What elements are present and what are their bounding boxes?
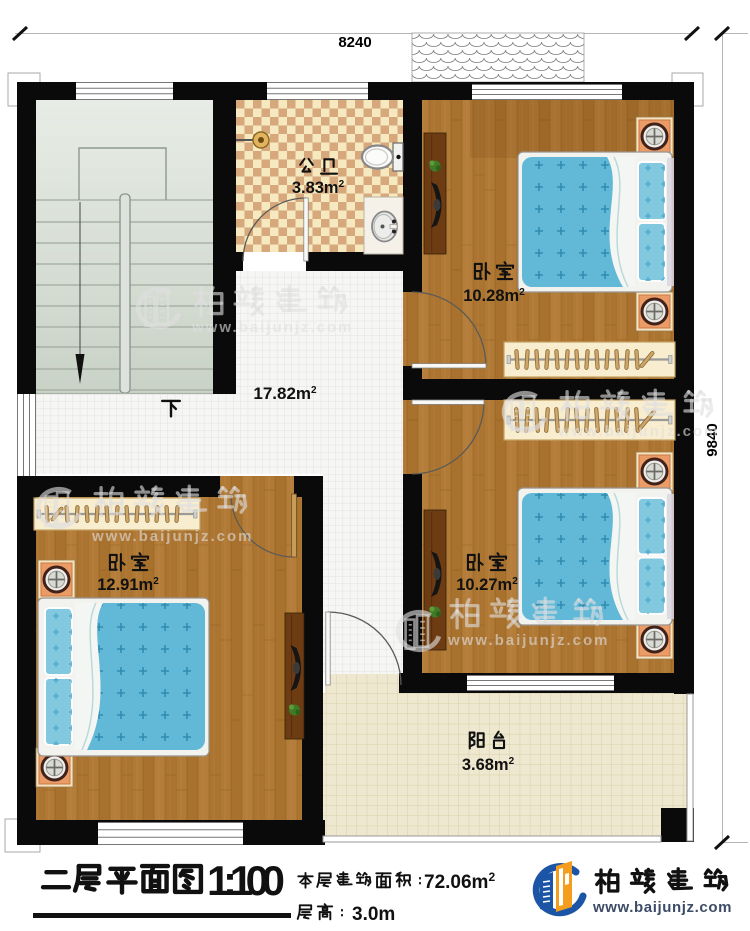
svg-text:3.68m2: 3.68m2 <box>462 756 515 774</box>
svg-text:www.baijunjz.com: www.baijunjz.com <box>557 423 719 440</box>
svg-text:10.28m2: 10.28m2 <box>463 287 525 305</box>
svg-text:www.baijunjz.com: www.baijunjz.com <box>592 899 732 916</box>
svg-text:www.baijunjz.com: www.baijunjz.com <box>191 319 353 336</box>
svg-text:www.baijunjz.com: www.baijunjz.com <box>447 632 609 649</box>
svg-text:12.91m2: 12.91m2 <box>97 576 159 594</box>
svg-text:8240: 8240 <box>338 34 371 51</box>
svg-text:10.27m2: 10.27m2 <box>456 576 518 594</box>
svg-text:17.82m2: 17.82m2 <box>253 384 317 403</box>
svg-text:www.baijunjz.com: www.baijunjz.com <box>91 528 253 545</box>
svg-text:1:100: 1:100 <box>207 857 285 904</box>
svg-text:72.06m2: 72.06m2 <box>424 870 495 893</box>
svg-text:3.0m: 3.0m <box>352 904 395 925</box>
svg-text:3.83m2: 3.83m2 <box>292 179 345 197</box>
